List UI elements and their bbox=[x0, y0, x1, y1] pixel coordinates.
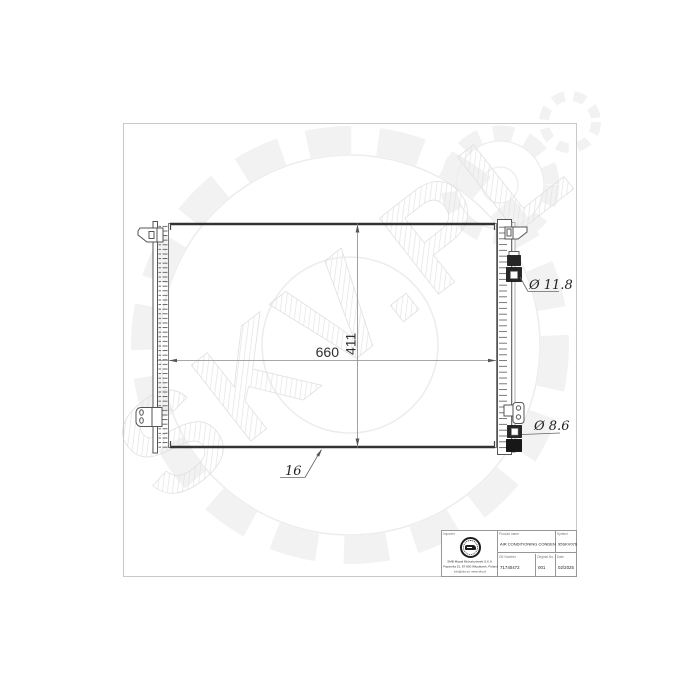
oe-number-value: 71740472 bbox=[500, 565, 520, 570]
title-block-product-cell: Product name AIR CONDITIONING CONDENSER bbox=[498, 531, 556, 553]
original-no-label: Original No. bbox=[537, 555, 554, 559]
title-block-importer-cell: Importer SMB-Migrał Michalczewski S.K.A.… bbox=[442, 531, 498, 576]
product-name-label: Product name bbox=[499, 532, 519, 536]
bracket-hole bbox=[140, 410, 144, 416]
company-logo bbox=[460, 537, 481, 558]
title-block-symbol-cell: Symbol 95SKV076 bbox=[556, 531, 576, 553]
title-block-oe-cell: OE Number 71740472 bbox=[498, 554, 536, 576]
dimension-arrows bbox=[169, 225, 496, 447]
dimension-lines bbox=[158, 224, 497, 448]
importer-address-line2: Papieżka 51, 87-800 Włocławek, Poland bbox=[443, 565, 496, 568]
title-block: Importer SMB-Migrał Michalczewski S.K.A.… bbox=[441, 530, 577, 577]
thickness-callout: 16 bbox=[285, 464, 302, 479]
mounting-brackets bbox=[136, 227, 527, 427]
bracket-bottom-left-tab bbox=[152, 408, 162, 427]
importer-address-line1: SMB-Migrał Michalczewski S.K.A. bbox=[443, 560, 496, 563]
condenser-drawing: 660 411 bbox=[0, 0, 700, 700]
receiver-drier-ticks bbox=[499, 223, 507, 451]
lower-port-callout: Ø 8.6 bbox=[533, 419, 569, 434]
title-block-date-cell: Date 02/2025 bbox=[556, 554, 576, 576]
bracket-top-right-hole bbox=[507, 229, 511, 236]
oe-number-label: OE Number bbox=[499, 555, 516, 559]
product-name-value: AIR CONDITIONING CONDENSER bbox=[500, 542, 564, 547]
bracket-top-left-hole bbox=[149, 232, 154, 239]
drawing-sheet: SKV.PL bbox=[0, 0, 700, 700]
leader-arrowhead bbox=[316, 449, 322, 457]
importer-label: Importer bbox=[443, 532, 455, 536]
dim-height-label: 411 bbox=[343, 332, 359, 355]
symbol-label: Symbol bbox=[557, 532, 568, 536]
original-no-value: 001 bbox=[538, 565, 545, 570]
logo-car-window bbox=[467, 547, 472, 548]
date-label: Date bbox=[557, 555, 564, 559]
bracket-hole bbox=[516, 415, 520, 419]
bracket-hole bbox=[516, 406, 520, 410]
symbol-value: 95SKV076 bbox=[558, 542, 577, 547]
date-value: 02/2025 bbox=[558, 565, 574, 570]
bracket-hole bbox=[140, 418, 144, 424]
title-block-original-cell: Original No. 001 bbox=[536, 554, 556, 576]
dim-width-label: 660 bbox=[316, 344, 340, 360]
importer-address-line3: info@skv.pl, www.skv.pl bbox=[443, 570, 496, 573]
condenser-core bbox=[169, 224, 497, 448]
upper-port-callout: Ø 11.8 bbox=[528, 278, 573, 293]
